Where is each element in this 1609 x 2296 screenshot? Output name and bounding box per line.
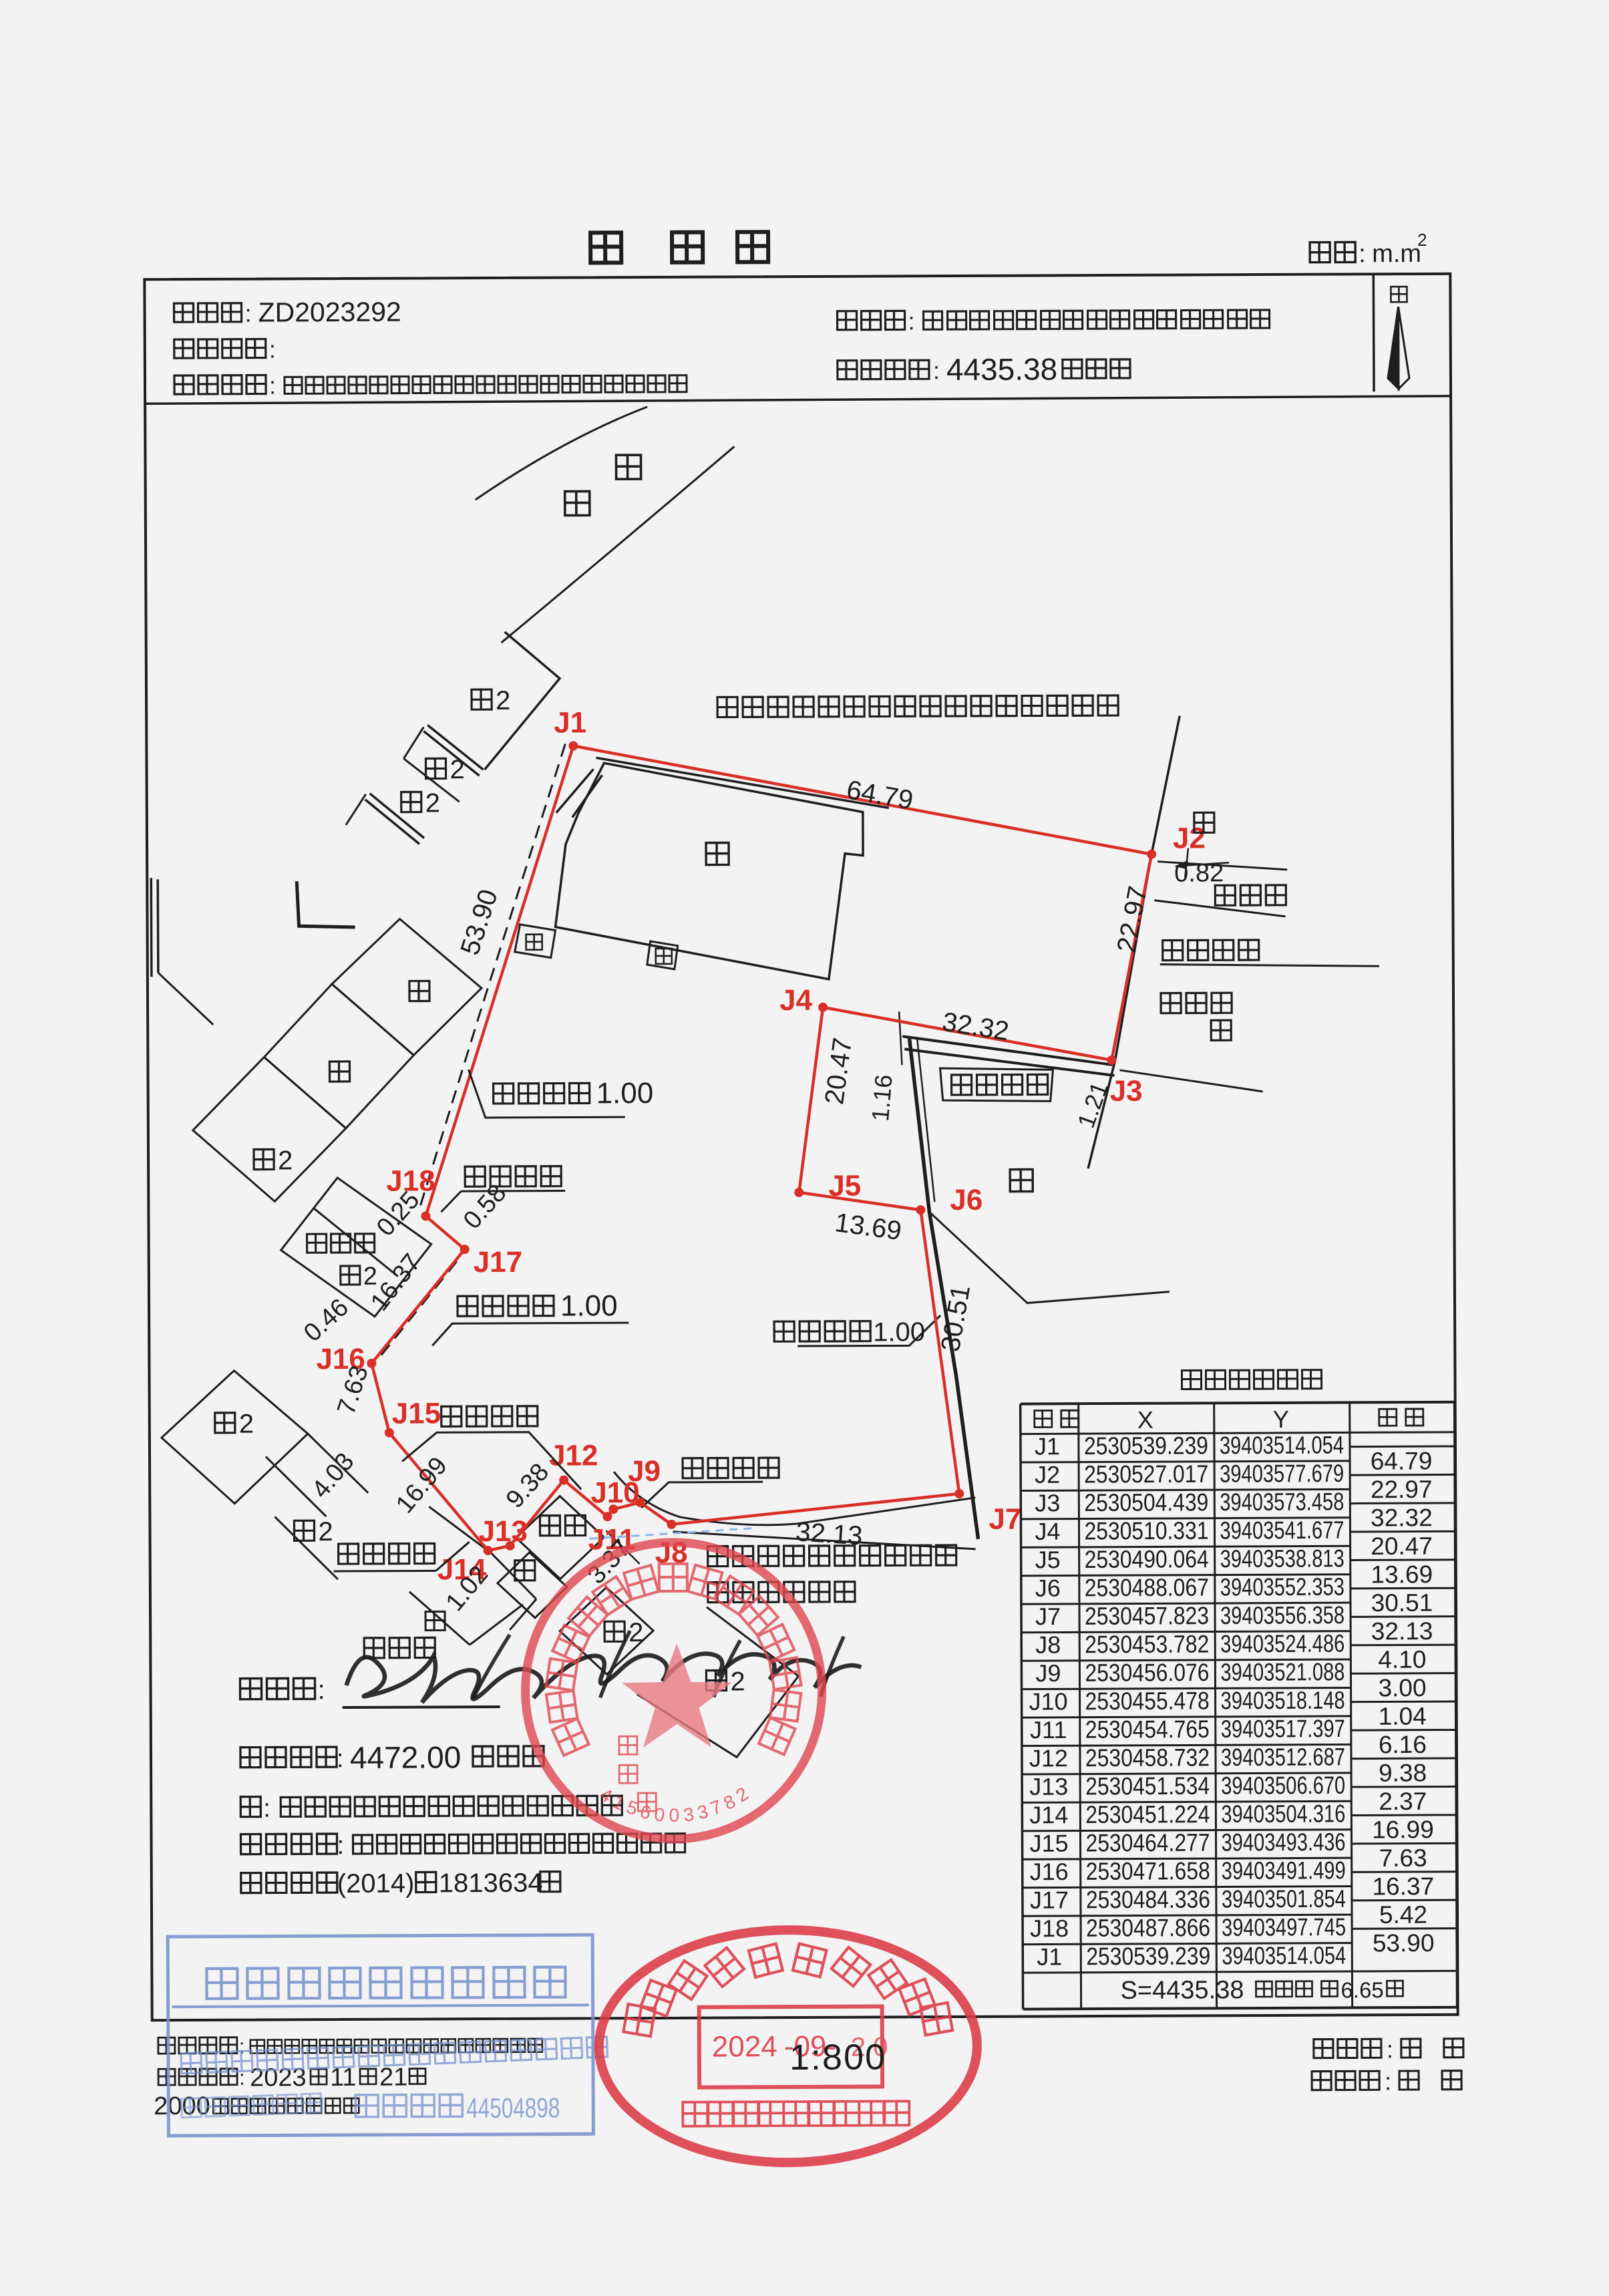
svg-text:J6: J6 bbox=[950, 1184, 982, 1216]
svg-text:Y: Y bbox=[1273, 1406, 1289, 1433]
svg-text:2530527.017: 2530527.017 bbox=[1084, 1460, 1208, 1488]
svg-text:39403514.054: 39403514.054 bbox=[1222, 1942, 1346, 1970]
svg-text::: : bbox=[337, 1745, 344, 1773]
svg-text:0.82: 0.82 bbox=[1174, 859, 1224, 887]
svg-text:J2: J2 bbox=[1035, 1461, 1060, 1488]
svg-text:m.m: m.m bbox=[1372, 240, 1421, 268]
svg-text:13.69: 13.69 bbox=[1371, 1561, 1433, 1588]
svg-text:2530490.064: 2530490.064 bbox=[1085, 1545, 1209, 1573]
svg-text:J6: J6 bbox=[1035, 1575, 1061, 1602]
svg-text:(2014): (2014) bbox=[337, 1869, 415, 1899]
svg-text::: : bbox=[263, 1794, 271, 1822]
svg-text::: : bbox=[1359, 240, 1366, 268]
svg-text:ZD2023292: ZD2023292 bbox=[258, 297, 401, 328]
svg-text:J8: J8 bbox=[1035, 1631, 1061, 1658]
svg-text:S=4435.38: S=4435.38 bbox=[1120, 1976, 1244, 2005]
svg-text:J12: J12 bbox=[1029, 1744, 1068, 1772]
svg-text:39403556.358: 39403556.358 bbox=[1220, 1601, 1345, 1629]
svg-text:4472.00: 4472.00 bbox=[350, 1740, 462, 1775]
svg-text:1.00: 1.00 bbox=[560, 1289, 618, 1322]
svg-text:39403514.054: 39403514.054 bbox=[1220, 1431, 1344, 1459]
svg-text:J13: J13 bbox=[478, 1515, 528, 1548]
svg-text:2530451.534: 2530451.534 bbox=[1085, 1772, 1210, 1800]
svg-text:2.37: 2.37 bbox=[1379, 1788, 1427, 1815]
svg-text:64.79: 64.79 bbox=[1371, 1447, 1433, 1474]
svg-text:39403506.670: 39403506.670 bbox=[1221, 1772, 1345, 1800]
svg-text:J1: J1 bbox=[1035, 1432, 1060, 1460]
svg-text:J3: J3 bbox=[1110, 1075, 1143, 1108]
svg-text:22.97: 22.97 bbox=[1371, 1476, 1433, 1503]
svg-text:4.10: 4.10 bbox=[1378, 1646, 1426, 1673]
svg-text:39403504.316: 39403504.316 bbox=[1221, 1800, 1345, 1828]
svg-text:J18: J18 bbox=[1030, 1915, 1069, 1942]
svg-text:2530504.439: 2530504.439 bbox=[1084, 1488, 1208, 1516]
svg-text:J4: J4 bbox=[779, 984, 813, 1017]
svg-text::: : bbox=[269, 371, 276, 399]
svg-text::: : bbox=[269, 335, 276, 363]
svg-text:J4: J4 bbox=[1035, 1518, 1060, 1545]
svg-text:J10: J10 bbox=[590, 1476, 640, 1509]
svg-text:2024: 2024 bbox=[712, 2030, 777, 2063]
svg-text:39403493.436: 39403493.436 bbox=[1221, 1828, 1345, 1856]
svg-text::: : bbox=[244, 300, 251, 327]
svg-text::: : bbox=[933, 357, 940, 384]
svg-text:2: 2 bbox=[363, 1263, 377, 1291]
svg-text:2530455.478: 2530455.478 bbox=[1085, 1687, 1210, 1715]
svg-text:1.00: 1.00 bbox=[596, 1077, 654, 1110]
svg-text:2: 2 bbox=[425, 788, 440, 818]
svg-text::: : bbox=[908, 307, 915, 335]
svg-text:J14: J14 bbox=[1029, 1801, 1068, 1828]
svg-text:39403573.458: 39403573.458 bbox=[1220, 1488, 1344, 1516]
svg-text:2530453.782: 2530453.782 bbox=[1085, 1631, 1209, 1659]
svg-text:2530539.239: 2530539.239 bbox=[1086, 1942, 1210, 1970]
svg-text:39403577.679: 39403577.679 bbox=[1220, 1460, 1344, 1488]
svg-text:J2: J2 bbox=[1173, 822, 1206, 854]
svg-text:39403541.677: 39403541.677 bbox=[1220, 1516, 1344, 1544]
svg-text:2530488.067: 2530488.067 bbox=[1085, 1574, 1209, 1602]
svg-text:2: 2 bbox=[278, 1146, 293, 1175]
svg-text:6.65: 6.65 bbox=[1340, 1977, 1383, 2002]
svg-text:J10: J10 bbox=[1029, 1687, 1068, 1715]
svg-text:39403521.088: 39403521.088 bbox=[1220, 1658, 1345, 1686]
svg-text:2530456.076: 2530456.076 bbox=[1085, 1659, 1209, 1687]
svg-text:2530451.224: 2530451.224 bbox=[1085, 1800, 1210, 1828]
svg-text:6.16: 6.16 bbox=[1379, 1731, 1427, 1758]
svg-text:2: 2 bbox=[496, 686, 510, 715]
svg-text:2530454.765: 2530454.765 bbox=[1085, 1715, 1210, 1744]
svg-text:J15: J15 bbox=[392, 1397, 441, 1430]
svg-text:2: 2 bbox=[450, 755, 464, 784]
svg-text:J11: J11 bbox=[1030, 1716, 1067, 1744]
svg-text::: : bbox=[1387, 2035, 1393, 2063]
svg-text:39403538.813: 39403538.813 bbox=[1220, 1544, 1345, 1573]
svg-text:2530457.823: 2530457.823 bbox=[1085, 1602, 1209, 1630]
svg-text:J3: J3 bbox=[1035, 1489, 1060, 1516]
svg-text:2530487.866: 2530487.866 bbox=[1086, 1914, 1210, 1942]
svg-text:J17: J17 bbox=[1030, 1886, 1069, 1913]
svg-text:53.90: 53.90 bbox=[1373, 1929, 1435, 1957]
svg-text:J5: J5 bbox=[828, 1170, 861, 1202]
svg-text:1:800: 1:800 bbox=[789, 2037, 886, 2078]
svg-text:J5: J5 bbox=[1035, 1546, 1061, 1573]
svg-text:J13: J13 bbox=[1029, 1773, 1068, 1800]
svg-text:21: 21 bbox=[379, 2064, 407, 2092]
svg-text:2: 2 bbox=[318, 1517, 333, 1546]
svg-text:39403552.353: 39403552.353 bbox=[1220, 1573, 1345, 1601]
svg-text:39403497.745: 39403497.745 bbox=[1222, 1913, 1346, 1941]
svg-text:1.16: 1.16 bbox=[866, 1074, 898, 1122]
svg-text:2530458.732: 2530458.732 bbox=[1085, 1744, 1210, 1772]
svg-text:2: 2 bbox=[239, 1410, 254, 1439]
svg-text:39403524.486: 39403524.486 bbox=[1220, 1630, 1345, 1658]
svg-text:4435.38: 4435.38 bbox=[946, 351, 1058, 387]
svg-text:J16: J16 bbox=[1030, 1858, 1069, 1885]
svg-text:30.51: 30.51 bbox=[1371, 1589, 1433, 1617]
svg-text:20.47: 20.47 bbox=[1371, 1532, 1433, 1560]
svg-text:39403491.499: 39403491.499 bbox=[1222, 1856, 1346, 1884]
svg-text:J7: J7 bbox=[1035, 1603, 1061, 1630]
svg-text::: : bbox=[337, 1832, 344, 1860]
svg-text:J9: J9 bbox=[1035, 1659, 1061, 1687]
svg-text:39403501.854: 39403501.854 bbox=[1222, 1885, 1346, 1913]
svg-text:0: 0 bbox=[669, 1805, 680, 1826]
svg-text:2530464.277: 2530464.277 bbox=[1085, 1829, 1210, 1857]
svg-text:32.13: 32.13 bbox=[1371, 1617, 1433, 1645]
svg-text:39403517.397: 39403517.397 bbox=[1221, 1715, 1345, 1743]
svg-text:16.37: 16.37 bbox=[1372, 1872, 1434, 1900]
svg-text:1.00: 1.00 bbox=[873, 1317, 925, 1347]
svg-text:2: 2 bbox=[730, 1667, 745, 1696]
svg-text:32.32: 32.32 bbox=[1371, 1504, 1433, 1531]
svg-text:2530539.239: 2530539.239 bbox=[1084, 1432, 1208, 1460]
svg-text:1.04: 1.04 bbox=[1379, 1702, 1427, 1730]
svg-text:2530471.658: 2530471.658 bbox=[1086, 1857, 1210, 1885]
svg-text:3.00: 3.00 bbox=[1378, 1674, 1426, 1701]
svg-text:39403518.148: 39403518.148 bbox=[1221, 1687, 1345, 1715]
svg-text:16.99: 16.99 bbox=[1372, 1816, 1434, 1843]
svg-text:7.63: 7.63 bbox=[1379, 1844, 1427, 1872]
svg-text:44504898: 44504898 bbox=[466, 2092, 560, 2124]
svg-text:5.42: 5.42 bbox=[1379, 1901, 1427, 1929]
svg-text:J17: J17 bbox=[474, 1246, 523, 1279]
svg-text:9.38: 9.38 bbox=[1379, 1759, 1427, 1786]
svg-text:2530484.336: 2530484.336 bbox=[1086, 1886, 1210, 1914]
svg-text:X: X bbox=[1137, 1406, 1153, 1434]
svg-text:J7: J7 bbox=[989, 1503, 1021, 1536]
svg-text::: : bbox=[1385, 2068, 1391, 2095]
svg-text:J15: J15 bbox=[1029, 1830, 1068, 1857]
svg-text:J1: J1 bbox=[554, 706, 586, 739]
svg-text::: : bbox=[317, 1675, 325, 1705]
svg-text:2530510.331: 2530510.331 bbox=[1084, 1517, 1208, 1545]
svg-text:2: 2 bbox=[1417, 230, 1427, 250]
svg-text:J1: J1 bbox=[1037, 1943, 1062, 1970]
svg-text:1813634: 1813634 bbox=[439, 1868, 543, 1899]
svg-text:J12: J12 bbox=[549, 1439, 598, 1472]
svg-text:39403512.687: 39403512.687 bbox=[1221, 1743, 1345, 1771]
